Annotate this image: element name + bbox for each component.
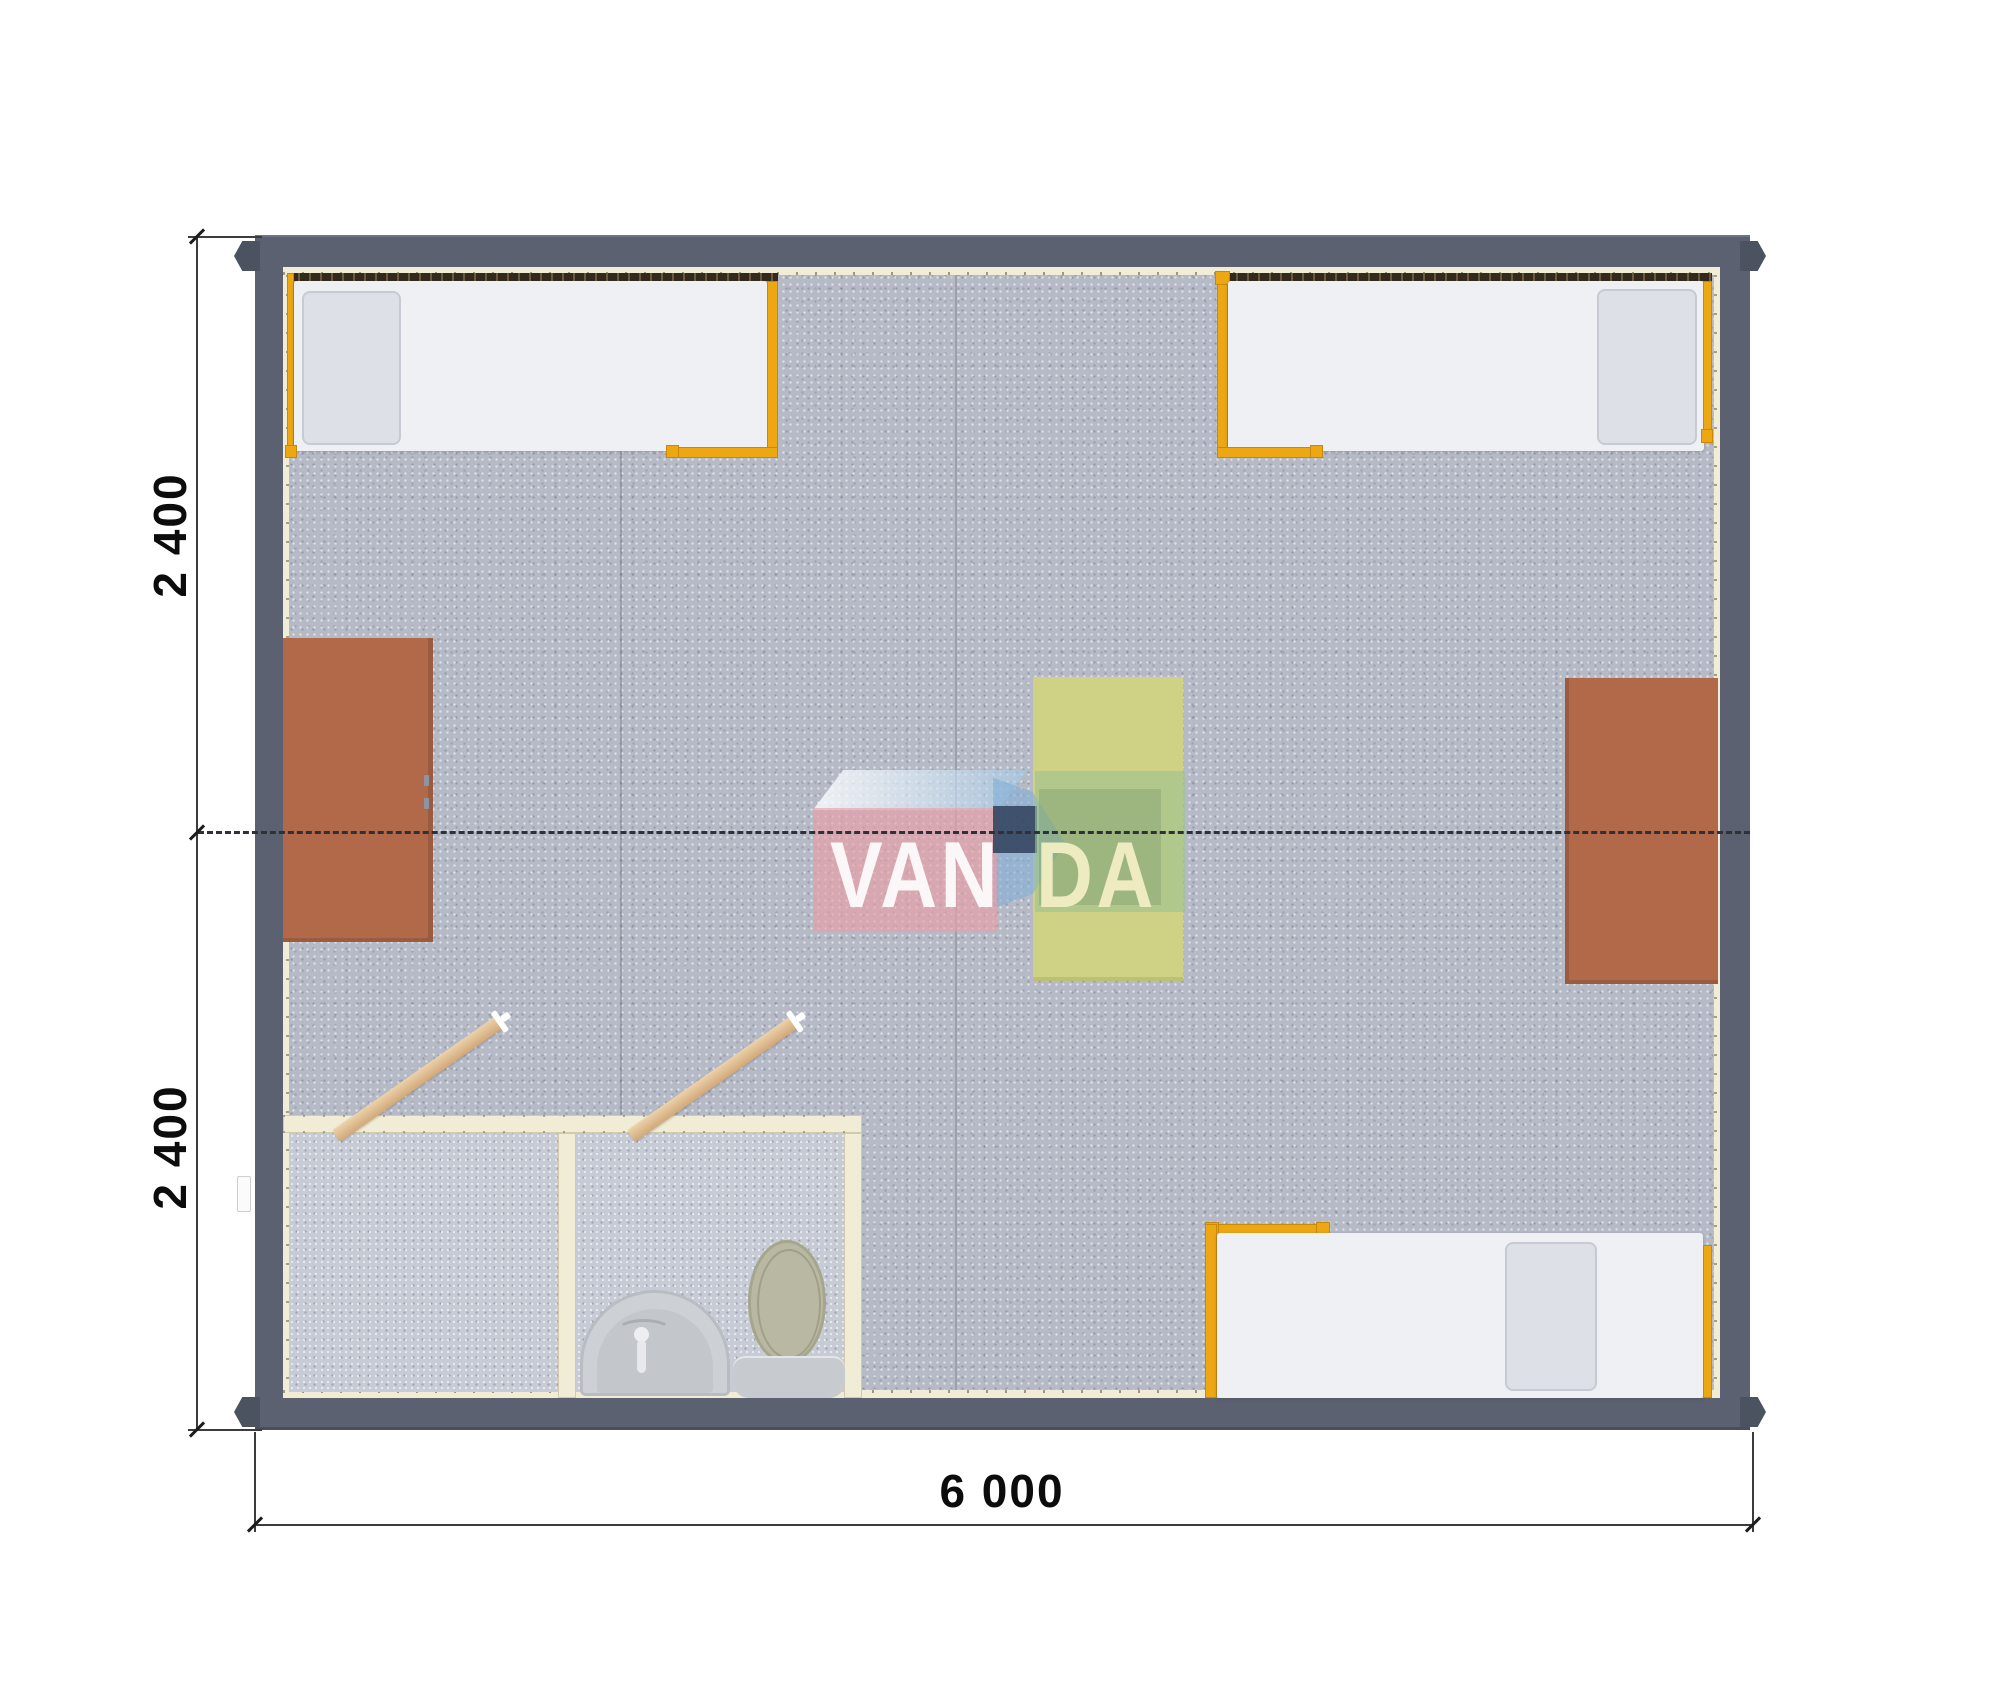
bed-frame-foot: [285, 445, 297, 458]
corner-casting-icon: [1740, 241, 1766, 271]
bed-top-right: [1217, 267, 1712, 458]
dimension-label-module-top: 2 400: [143, 472, 197, 597]
bed-bottom-right: [1205, 1222, 1712, 1398]
dimension-label-module-bottom: 2 400: [143, 1084, 197, 1209]
bathroom-floor-shower: [289, 1133, 558, 1392]
faucet-icon: [634, 1327, 649, 1342]
bathroom-wall-partition: [558, 1133, 576, 1398]
bed-frame-rail: [1217, 447, 1323, 458]
logo-text-da: DA: [1036, 828, 1157, 922]
entry-door-handle: [237, 1176, 251, 1212]
wall-weld-marks: [247, 292, 252, 1378]
cabinet-handle: [424, 798, 429, 809]
bed-frame-rail: [1703, 1245, 1712, 1398]
bed-mattress: [1217, 1233, 1703, 1398]
bed-frame-foot: [1701, 429, 1713, 443]
dimension-label-width: 6 000: [939, 1464, 1064, 1518]
dimension-line-bottom: [255, 1524, 1753, 1526]
module-split-dashed-line: [198, 831, 1750, 834]
corner-casting-icon: [234, 1397, 260, 1427]
bed-frame-foot: [666, 445, 679, 458]
toilet-icon: [748, 1240, 826, 1364]
bed-head-rail: [1225, 273, 1712, 281]
bathroom-wall-right: [844, 1133, 862, 1398]
bed-pillow: [1505, 1242, 1597, 1391]
corner-casting-icon: [234, 241, 260, 271]
logo-text-van: VAN: [830, 828, 1001, 922]
bed-pillow: [302, 291, 401, 445]
faucet-lever: [637, 1341, 646, 1373]
bed-head-rail: [287, 273, 778, 281]
bed-frame-rail: [287, 273, 294, 458]
bed-frame-foot: [1310, 445, 1323, 458]
floorplan-canvas: VAN DA 2 400 2 400 6 000: [0, 0, 2000, 1701]
bed-pillow: [1597, 289, 1697, 445]
cabinet-handle: [424, 775, 429, 786]
dimension-extension-line: [1752, 1432, 1754, 1532]
bed-frame-rail: [1217, 272, 1228, 458]
cabinet-left: [283, 638, 433, 942]
bed-frame-rail: [668, 447, 778, 458]
toilet-base: [733, 1356, 845, 1398]
bed-frame-rail: [1205, 1224, 1217, 1398]
bed-top-left: [283, 267, 778, 458]
dimension-extension-line: [254, 1432, 256, 1532]
toilet-lid-rim: [757, 1249, 821, 1359]
corner-casting-icon: [1740, 1397, 1766, 1427]
bed-frame-rail: [1703, 281, 1712, 431]
bed-frame-rail: [767, 281, 778, 451]
